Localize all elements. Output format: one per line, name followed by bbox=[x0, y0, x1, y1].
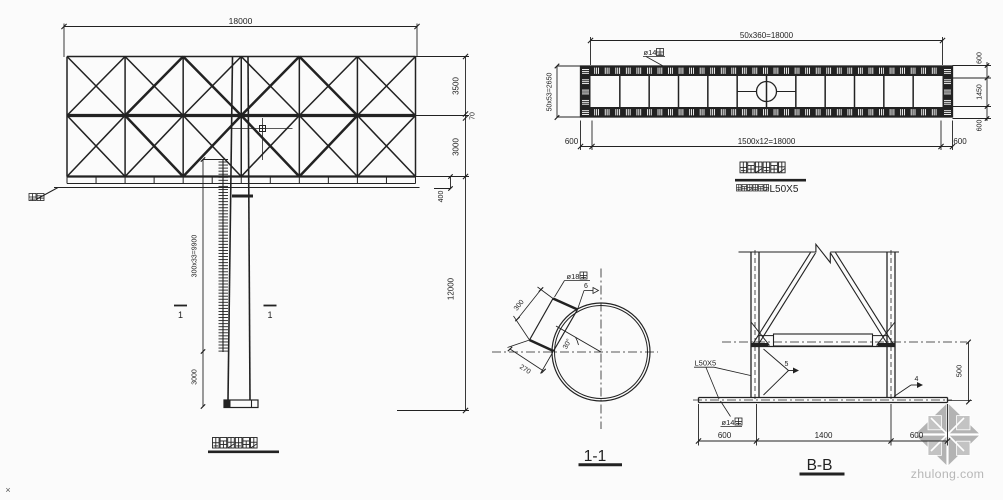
svg-text:×: × bbox=[5, 485, 10, 495]
svg-text:500: 500 bbox=[955, 365, 964, 378]
svg-text:50x53=2650: 50x53=2650 bbox=[547, 73, 554, 112]
svg-text:1450: 1450 bbox=[977, 84, 984, 100]
svg-text:600: 600 bbox=[953, 137, 967, 146]
svg-text:50x360=18000: 50x360=18000 bbox=[740, 31, 794, 40]
svg-text:1500x12=18000: 1500x12=18000 bbox=[738, 137, 796, 146]
svg-text:3500: 3500 bbox=[452, 77, 461, 95]
svg-text:zhulong.com: zhulong.com bbox=[911, 467, 985, 481]
svg-text:600: 600 bbox=[565, 137, 579, 146]
svg-text:1-1: 1-1 bbox=[584, 448, 606, 465]
svg-text:70: 70 bbox=[470, 112, 477, 120]
svg-text:3000: 3000 bbox=[192, 369, 199, 385]
svg-text:18000: 18000 bbox=[229, 16, 253, 26]
svg-text:1: 1 bbox=[178, 310, 183, 320]
svg-text:1: 1 bbox=[267, 310, 272, 320]
svg-text:600: 600 bbox=[718, 431, 732, 440]
svg-text:400: 400 bbox=[438, 191, 445, 203]
svg-text:6: 6 bbox=[584, 283, 588, 290]
svg-text:600: 600 bbox=[910, 431, 924, 440]
svg-text:ø14: ø14 bbox=[722, 418, 735, 427]
svg-text:12000: 12000 bbox=[447, 277, 456, 300]
svg-text:B-B: B-B bbox=[807, 457, 833, 474]
svg-text:1400: 1400 bbox=[815, 431, 833, 440]
svg-text:L50X5: L50X5 bbox=[695, 359, 717, 368]
svg-text:4: 4 bbox=[915, 376, 919, 383]
svg-text:ø18: ø18 bbox=[567, 272, 580, 281]
svg-text:300x33=9900: 300x33=9900 bbox=[192, 235, 199, 278]
svg-text:600: 600 bbox=[977, 120, 984, 132]
svg-text:ø14: ø14 bbox=[644, 48, 657, 57]
svg-text:3000: 3000 bbox=[452, 138, 461, 156]
svg-text:600: 600 bbox=[977, 52, 984, 64]
svg-text:5: 5 bbox=[785, 361, 789, 368]
svg-text:L50X5: L50X5 bbox=[770, 184, 799, 195]
